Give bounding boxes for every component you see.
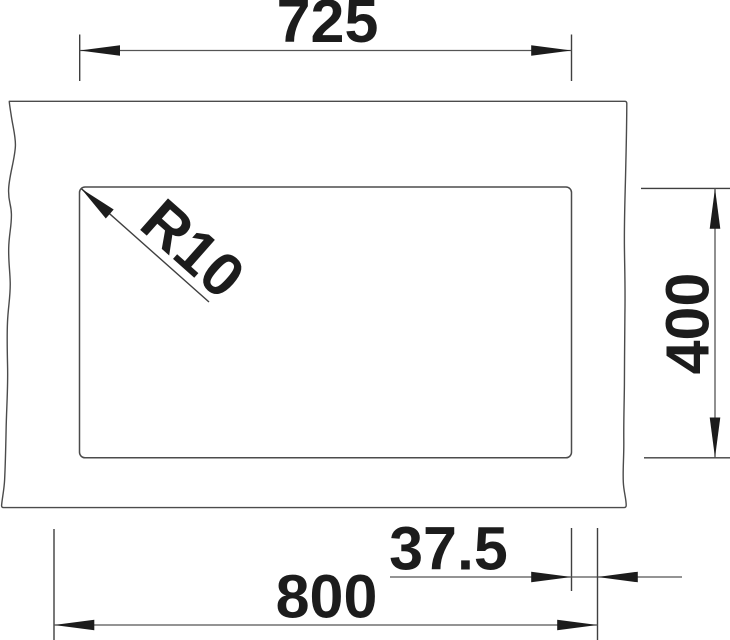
svg-text:37.5: 37.5 [389,515,508,583]
svg-text:400: 400 [653,273,721,375]
svg-text:800: 800 [276,563,378,631]
svg-text:725: 725 [277,0,379,55]
svg-text:R10: R10 [129,186,258,311]
